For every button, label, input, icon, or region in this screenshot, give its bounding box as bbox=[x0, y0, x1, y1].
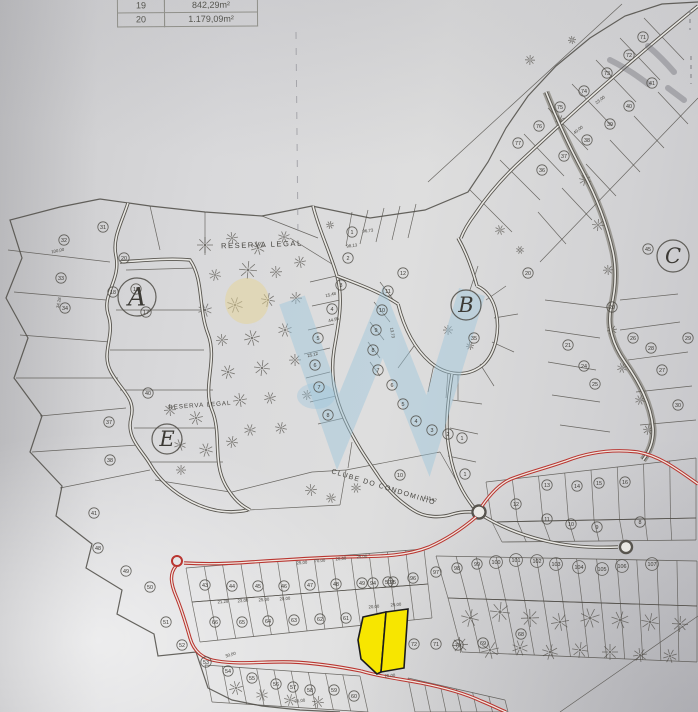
svg-text:10: 10 bbox=[379, 308, 385, 314]
plot-number: 16 bbox=[620, 477, 630, 487]
svg-text:53: 53 bbox=[203, 660, 209, 666]
svg-text:B: B bbox=[457, 293, 473, 317]
svg-text:45: 45 bbox=[645, 247, 651, 253]
plot-number: 37 bbox=[559, 151, 569, 161]
svg-text:2: 2 bbox=[347, 256, 350, 262]
svg-text:41: 41 bbox=[91, 511, 97, 517]
svg-text:73: 73 bbox=[604, 71, 610, 77]
region-label: RESERVA LEGAL bbox=[168, 400, 232, 411]
svg-text:37: 37 bbox=[106, 420, 112, 426]
svg-text:101: 101 bbox=[512, 558, 521, 564]
svg-text:52: 52 bbox=[179, 643, 185, 649]
highlighted-lots bbox=[358, 609, 408, 674]
svg-text:46: 46 bbox=[281, 584, 287, 590]
svg-text:99: 99 bbox=[474, 562, 480, 568]
measurement-label: 25,00 bbox=[296, 560, 308, 566]
plot-number: 75 bbox=[555, 102, 565, 112]
tree-icon bbox=[660, 646, 679, 665]
plot-number: 72 bbox=[624, 50, 634, 60]
plot-number: 54 bbox=[223, 666, 233, 676]
plot-number: 18 bbox=[108, 287, 118, 297]
svg-text:45: 45 bbox=[255, 584, 261, 590]
svg-text:11: 11 bbox=[385, 289, 391, 295]
plot-number: 104 bbox=[573, 561, 586, 574]
measurement-label: 35,00 bbox=[294, 697, 306, 703]
svg-text:104: 104 bbox=[575, 565, 584, 571]
plot-number: 41 bbox=[647, 78, 657, 88]
svg-text:60: 60 bbox=[351, 694, 357, 700]
plot-number: 107 bbox=[646, 558, 659, 571]
measurement-label: 20,00 bbox=[279, 596, 291, 602]
area-table: 19842,29m²201.179,09m² bbox=[118, 0, 258, 27]
plot-number: 49 bbox=[357, 578, 367, 588]
svg-text:105: 105 bbox=[598, 567, 607, 573]
tree-icon bbox=[188, 410, 205, 427]
svg-text:102: 102 bbox=[533, 559, 542, 565]
svg-text:3: 3 bbox=[431, 428, 434, 434]
plot-number: 77 bbox=[513, 138, 523, 148]
svg-text:12: 12 bbox=[513, 502, 519, 508]
svg-text:8: 8 bbox=[639, 520, 642, 526]
tree-icon bbox=[324, 491, 338, 505]
plot-number: 68 bbox=[516, 629, 526, 639]
section-marker: C bbox=[657, 240, 689, 272]
tree-symbols bbox=[162, 34, 689, 708]
svg-text:77: 77 bbox=[515, 141, 521, 147]
svg-text:55: 55 bbox=[249, 676, 255, 682]
plot-number: 32 bbox=[59, 235, 69, 245]
plot-number: 48 bbox=[93, 543, 103, 553]
plot-number: 58 bbox=[305, 685, 315, 695]
measurement-label: 20,00 bbox=[335, 556, 347, 562]
plot-number: 12 bbox=[398, 268, 408, 278]
svg-text:26: 26 bbox=[630, 336, 636, 342]
svg-text:65: 65 bbox=[239, 620, 245, 626]
svg-text:1: 1 bbox=[461, 436, 464, 442]
svg-text:70: 70 bbox=[455, 643, 461, 649]
section-marker: E bbox=[152, 424, 182, 454]
svg-text:96: 96 bbox=[410, 576, 416, 582]
svg-text:48: 48 bbox=[333, 582, 339, 588]
svg-text:61: 61 bbox=[343, 616, 349, 622]
svg-text:33: 33 bbox=[58, 276, 64, 282]
measurement-label: 23,00 bbox=[237, 598, 249, 604]
plot-number: 11 bbox=[542, 514, 552, 524]
svg-text:2: 2 bbox=[447, 432, 450, 438]
measurement-label: 25,00 bbox=[356, 554, 368, 560]
plot-number: 27 bbox=[657, 365, 667, 375]
svg-text:27: 27 bbox=[659, 368, 665, 374]
tree-icon bbox=[238, 260, 258, 280]
plot-boundary-lines bbox=[6, 2, 698, 712]
tree-icon bbox=[577, 605, 602, 630]
tree-icon bbox=[251, 357, 273, 379]
svg-text:18: 18 bbox=[110, 290, 116, 296]
plot-numbers: 3132333420191817374038414849505152345678… bbox=[56, 32, 693, 701]
svg-text:10: 10 bbox=[397, 473, 403, 479]
svg-text:15: 15 bbox=[596, 481, 602, 487]
svg-text:29: 29 bbox=[685, 336, 691, 342]
svg-text:28: 28 bbox=[648, 346, 654, 352]
svg-text:94: 94 bbox=[370, 581, 376, 587]
measurement-label: 70,00 bbox=[314, 558, 326, 564]
region-label: RESERVA LEGAL bbox=[221, 239, 303, 251]
svg-text:30: 30 bbox=[675, 403, 681, 409]
measurement-label: 25,00 bbox=[258, 597, 270, 603]
plot-number: 11 bbox=[383, 286, 393, 296]
svg-text:97: 97 bbox=[433, 570, 439, 576]
svg-text:3: 3 bbox=[340, 283, 343, 289]
svg-text:62: 62 bbox=[317, 617, 323, 623]
plot-number: 39 bbox=[605, 119, 615, 129]
plot-number: 76 bbox=[534, 121, 544, 131]
plot-number: 71 bbox=[431, 639, 441, 649]
plot-number: 55 bbox=[247, 673, 257, 683]
svg-text:4: 4 bbox=[331, 307, 334, 313]
tree-icon bbox=[325, 220, 334, 229]
highlighted-lot bbox=[381, 609, 408, 672]
svg-text:98: 98 bbox=[454, 566, 460, 572]
plot-number: 38 bbox=[582, 135, 592, 145]
tree-icon bbox=[254, 687, 270, 703]
plot-number: 41 bbox=[89, 508, 99, 518]
plot-number: 1 bbox=[460, 469, 470, 479]
plot-number: 24 bbox=[579, 361, 589, 371]
table-row: 201.179,09m² bbox=[118, 13, 258, 28]
tree-icon bbox=[197, 237, 213, 253]
svg-text:1: 1 bbox=[464, 472, 467, 478]
svg-text:43: 43 bbox=[202, 583, 208, 589]
plot-number: 33 bbox=[56, 273, 66, 283]
plot-number: 20 bbox=[119, 253, 129, 263]
plot-number: 96 bbox=[408, 573, 418, 583]
measurement-label: 15,48 bbox=[325, 291, 337, 299]
svg-text:66: 66 bbox=[212, 620, 218, 626]
svg-text:75: 75 bbox=[557, 105, 563, 111]
svg-text:48: 48 bbox=[95, 546, 101, 552]
plot-number: 69 bbox=[478, 638, 488, 648]
plot-number: 70 bbox=[453, 640, 463, 650]
plot-number: 2 bbox=[343, 253, 353, 263]
tree-icon bbox=[304, 483, 317, 496]
plot-number: 45 bbox=[253, 581, 263, 591]
svg-text:12: 12 bbox=[400, 271, 406, 277]
svg-text:38: 38 bbox=[584, 138, 590, 144]
plot-number: 28 bbox=[646, 343, 656, 353]
svg-text:34: 34 bbox=[62, 306, 68, 312]
measurement-label: 96,73 bbox=[362, 227, 374, 233]
plot-number: 9 bbox=[592, 522, 602, 532]
svg-text:10: 10 bbox=[568, 522, 574, 528]
svg-text:7: 7 bbox=[377, 368, 380, 374]
svg-text:100: 100 bbox=[492, 560, 501, 566]
plot-number: 65 bbox=[237, 617, 247, 627]
svg-text:25: 25 bbox=[592, 382, 598, 388]
tree-icon bbox=[293, 255, 307, 269]
section-marker: A bbox=[118, 278, 156, 316]
plot-number: 38 bbox=[105, 455, 115, 465]
plot-number: 1 bbox=[457, 433, 467, 443]
svg-text:39: 39 bbox=[607, 122, 613, 128]
plot-number: 47 bbox=[305, 580, 315, 590]
svg-text:63: 63 bbox=[291, 618, 297, 624]
svg-text:21: 21 bbox=[565, 343, 571, 349]
svg-text:E: E bbox=[158, 427, 174, 451]
plot-number: 4 bbox=[327, 304, 337, 314]
svg-text:6: 6 bbox=[314, 363, 317, 369]
tree-icon bbox=[228, 680, 245, 697]
tree-icon bbox=[241, 327, 263, 349]
plot-number: 59 bbox=[329, 685, 339, 695]
plot-number: 102 bbox=[531, 555, 544, 568]
svg-text:38: 38 bbox=[107, 458, 113, 464]
svg-text:44: 44 bbox=[229, 584, 235, 590]
tree-icon bbox=[509, 637, 530, 658]
svg-text:20: 20 bbox=[609, 305, 615, 311]
plot-number: 95 bbox=[388, 577, 398, 587]
tree-icon bbox=[672, 616, 689, 633]
smudge-mark bbox=[668, 88, 684, 100]
svg-text:69: 69 bbox=[480, 641, 486, 647]
measurement-label: 30,00 bbox=[225, 650, 237, 658]
plot-number: 29 bbox=[683, 333, 693, 343]
tree-icon bbox=[566, 34, 577, 45]
paper-crease bbox=[296, 32, 298, 236]
plot-number: 101 bbox=[510, 554, 523, 567]
map-svg: 3132333420191817374038414849505152345678… bbox=[0, 0, 698, 712]
tree-icon bbox=[197, 441, 216, 460]
svg-text:4: 4 bbox=[415, 419, 418, 425]
tree-icon bbox=[225, 435, 239, 449]
plot-area-cell: 1.179,09m² bbox=[164, 13, 258, 28]
plot-number: 26 bbox=[628, 333, 638, 343]
svg-text:8: 8 bbox=[372, 348, 375, 354]
tree-icon bbox=[515, 245, 526, 256]
plot-number: 103 bbox=[550, 558, 563, 571]
plot-number: 52 bbox=[177, 640, 187, 650]
plot-number: 43 bbox=[200, 580, 210, 590]
plot-number: 12 bbox=[511, 499, 521, 509]
plot-number: 35 bbox=[469, 333, 479, 343]
tree-icon bbox=[525, 55, 535, 65]
plot-number: 34 bbox=[60, 303, 70, 313]
svg-text:68: 68 bbox=[518, 632, 524, 638]
svg-text:20: 20 bbox=[525, 271, 531, 277]
svg-text:58: 58 bbox=[307, 688, 313, 694]
svg-text:9: 9 bbox=[375, 328, 378, 334]
svg-text:13: 13 bbox=[544, 483, 550, 489]
measurement-label: 20,00 bbox=[368, 604, 380, 610]
svg-text:11: 11 bbox=[544, 517, 550, 523]
svg-text:56: 56 bbox=[273, 682, 279, 688]
plot-number: 106 bbox=[616, 560, 629, 573]
tree-icon bbox=[207, 267, 224, 284]
plot-number: 46 bbox=[279, 581, 289, 591]
measurement-label: 25,00 bbox=[390, 602, 402, 608]
plot-number: 94 bbox=[368, 578, 378, 588]
svg-text:36: 36 bbox=[539, 168, 545, 174]
svg-text:71: 71 bbox=[640, 35, 646, 41]
svg-text:41: 41 bbox=[649, 81, 655, 87]
svg-text:32: 32 bbox=[61, 238, 67, 244]
svg-text:20: 20 bbox=[121, 256, 127, 262]
svg-text:14: 14 bbox=[574, 484, 580, 490]
measurement-label: 21,28 bbox=[217, 599, 229, 605]
svg-text:57: 57 bbox=[290, 685, 296, 691]
measurement-label: 98,13 bbox=[346, 242, 358, 249]
plot-number: 74 bbox=[579, 86, 589, 96]
svg-text:9: 9 bbox=[596, 525, 599, 531]
svg-text:31: 31 bbox=[100, 225, 106, 231]
svg-text:49: 49 bbox=[359, 581, 365, 587]
plot-number: 98 bbox=[452, 563, 462, 573]
plot-number: 51 bbox=[161, 617, 171, 627]
svg-text:40: 40 bbox=[145, 391, 151, 397]
tree-icon bbox=[571, 641, 589, 659]
plot-number: 61 bbox=[341, 613, 351, 623]
plot-number: 31 bbox=[98, 222, 108, 232]
plot-number: 40 bbox=[143, 388, 153, 398]
watermark-logo bbox=[225, 278, 472, 436]
plot-number: 49 bbox=[121, 566, 131, 576]
svg-text:5: 5 bbox=[317, 336, 320, 342]
svg-text:47: 47 bbox=[307, 583, 313, 589]
tree-icon bbox=[599, 641, 622, 664]
plot-number: 25 bbox=[590, 379, 600, 389]
svg-text:35: 35 bbox=[471, 336, 477, 342]
svg-text:103: 103 bbox=[552, 562, 561, 568]
svg-text:7: 7 bbox=[318, 385, 321, 391]
tree-icon bbox=[521, 609, 540, 628]
plot-number: 72 bbox=[409, 639, 419, 649]
svg-text:106: 106 bbox=[618, 564, 627, 570]
plot-number: 73 bbox=[602, 68, 612, 78]
plot-number: 10 bbox=[395, 470, 405, 480]
table-row: 19842,29m² bbox=[118, 0, 258, 13]
tree-icon bbox=[215, 333, 228, 346]
tree-icon bbox=[268, 264, 285, 281]
svg-text:8: 8 bbox=[327, 413, 330, 419]
tree-icon bbox=[242, 422, 257, 437]
svg-text:51: 51 bbox=[163, 620, 169, 626]
svg-text:74: 74 bbox=[581, 89, 587, 95]
tree-icon bbox=[219, 363, 236, 380]
svg-text:1: 1 bbox=[351, 230, 354, 236]
plot-number: 40 bbox=[624, 101, 634, 111]
plot-number: 44 bbox=[227, 581, 237, 591]
map-photo: 3132333420191817374038414849505152345678… bbox=[0, 0, 698, 712]
plot-number: 15 bbox=[594, 478, 604, 488]
smudge-mark bbox=[648, 46, 674, 72]
svg-text:71: 71 bbox=[433, 642, 439, 648]
svg-text:59: 59 bbox=[331, 688, 337, 694]
svg-text:95: 95 bbox=[390, 580, 396, 586]
plot-number: 8 bbox=[635, 517, 645, 527]
plot-area-cell: 842,29m² bbox=[164, 0, 258, 13]
tree-icon bbox=[273, 420, 290, 437]
plot-number: 60 bbox=[349, 691, 359, 701]
plot-id-cell: 19 bbox=[117, 0, 165, 13]
plot-number: 66 bbox=[210, 617, 220, 627]
measurement-label: 23,00 bbox=[594, 94, 606, 105]
plot-number: 71 bbox=[638, 32, 648, 42]
tree-icon bbox=[493, 223, 507, 237]
measurement-label: 100,00 bbox=[51, 247, 65, 255]
plot-number: 36 bbox=[537, 165, 547, 175]
tree-icon bbox=[539, 641, 561, 663]
svg-text:54: 54 bbox=[225, 669, 231, 675]
svg-text:72: 72 bbox=[626, 53, 632, 59]
tree-icon bbox=[609, 609, 632, 632]
svg-text:40: 40 bbox=[626, 104, 632, 110]
tree-icon bbox=[263, 391, 278, 406]
svg-text:16: 16 bbox=[622, 480, 628, 486]
measurement-label: 40,00 bbox=[572, 124, 584, 135]
svg-text:37: 37 bbox=[561, 154, 567, 160]
plot-number: 14 bbox=[572, 481, 582, 491]
svg-text:50: 50 bbox=[147, 585, 153, 591]
plot-number: 50 bbox=[145, 582, 155, 592]
svg-text:5: 5 bbox=[402, 402, 405, 408]
plot-number: 45 bbox=[643, 244, 653, 254]
svg-text:76: 76 bbox=[536, 124, 542, 130]
tree-icon bbox=[547, 609, 572, 634]
plot-number: 97 bbox=[431, 567, 441, 577]
svg-text:72: 72 bbox=[411, 642, 417, 648]
plot-number: 37 bbox=[104, 417, 114, 427]
svg-text:6: 6 bbox=[391, 383, 394, 389]
roads bbox=[107, 6, 698, 553]
svg-text:A: A bbox=[126, 283, 146, 312]
plot-number: 21 bbox=[563, 340, 573, 350]
plot-number: 20 bbox=[523, 268, 533, 278]
measurement-label: 25,00 bbox=[384, 673, 396, 679]
plot-number: 105 bbox=[596, 563, 609, 576]
svg-text:64: 64 bbox=[265, 619, 271, 625]
plot-id-cell: 20 bbox=[117, 13, 165, 27]
region-label: CLUBE DO CONDOMINIO bbox=[330, 468, 436, 506]
plot-number: 57 bbox=[288, 682, 298, 692]
tree-icon bbox=[230, 390, 250, 410]
svg-text:C: C bbox=[665, 244, 681, 268]
photo-marks bbox=[296, 10, 691, 236]
plot-number: 30 bbox=[673, 400, 683, 410]
tree-icon bbox=[174, 463, 188, 477]
plot-number: 13 bbox=[542, 480, 552, 490]
svg-text:49: 49 bbox=[123, 569, 129, 575]
svg-text:24: 24 bbox=[581, 364, 587, 370]
svg-text:107: 107 bbox=[648, 562, 657, 568]
plot-number: 63 bbox=[289, 615, 299, 625]
